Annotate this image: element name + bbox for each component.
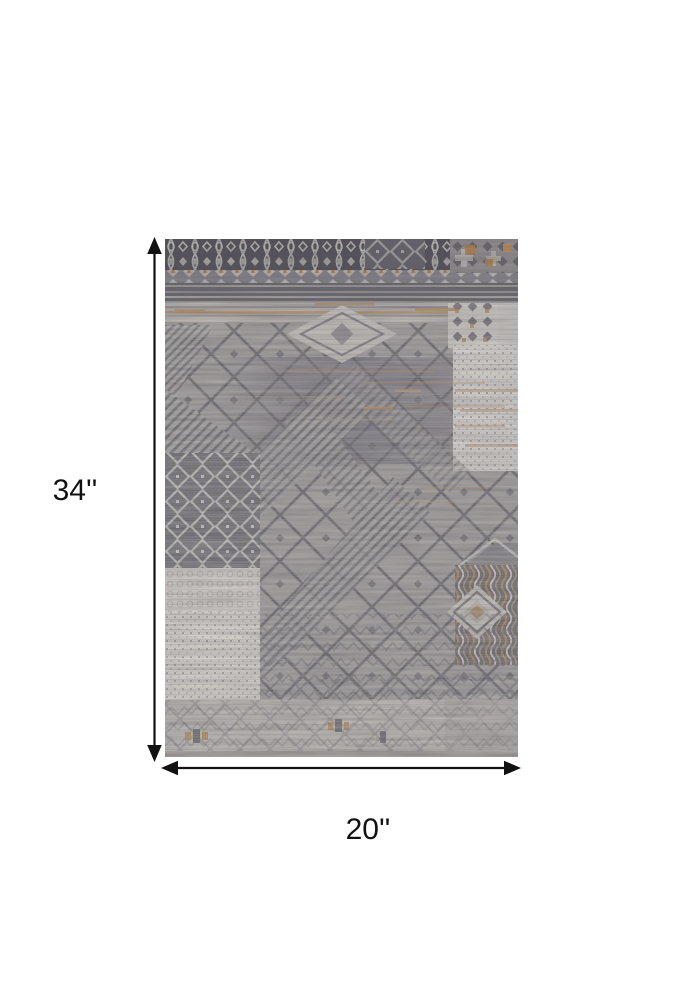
svg-text:20'': 20'' xyxy=(346,813,391,846)
svg-text:34'': 34'' xyxy=(53,474,98,507)
